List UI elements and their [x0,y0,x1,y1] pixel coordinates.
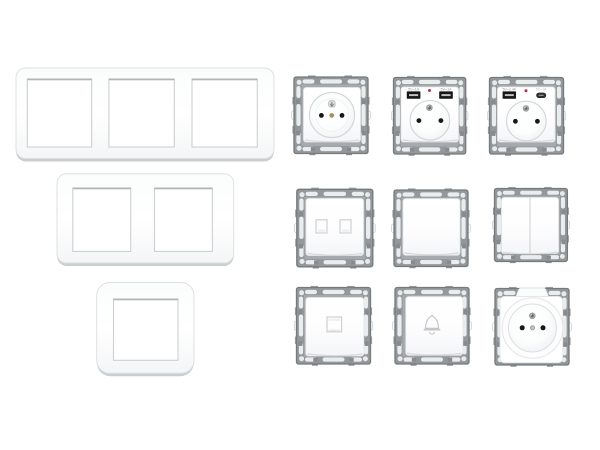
svg-text:5V⎓3A: 5V⎓3A [536,87,547,91]
svg-text:5V⎓2.4A: 5V⎓2.4A [503,87,517,91]
svg-text:5V⎓1A: 5V⎓1A [441,87,452,91]
svg-text:5V⎓1A: 5V⎓1A [408,87,419,91]
